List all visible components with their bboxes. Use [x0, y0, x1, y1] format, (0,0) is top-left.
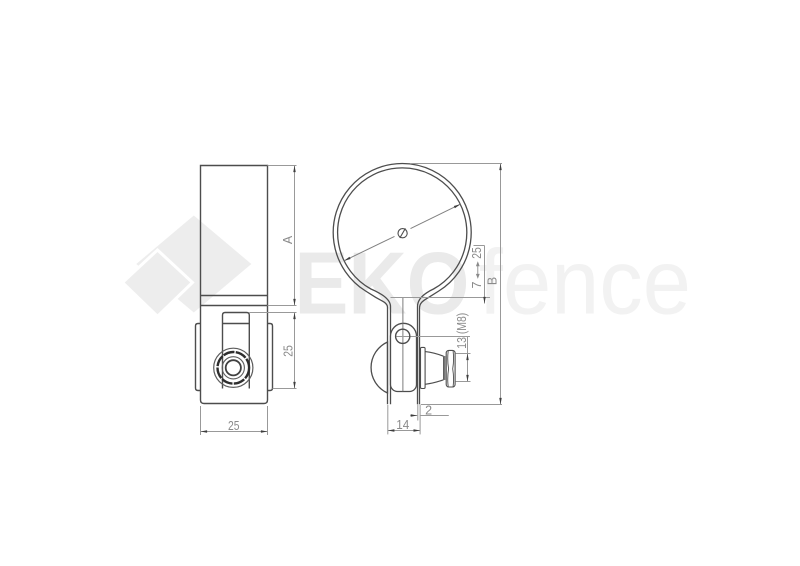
svg-text:25: 25 — [228, 419, 240, 433]
svg-text:14: 14 — [396, 418, 409, 432]
svg-text:fence: fence — [479, 231, 691, 333]
svg-text:7: 7 — [470, 281, 484, 288]
svg-text:25: 25 — [470, 247, 484, 259]
svg-text:B: B — [486, 277, 500, 285]
svg-text:13 (M8): 13 (M8) — [455, 313, 469, 349]
svg-text:25: 25 — [281, 345, 295, 357]
svg-text:2: 2 — [425, 404, 432, 418]
svg-text:A: A — [281, 235, 295, 244]
